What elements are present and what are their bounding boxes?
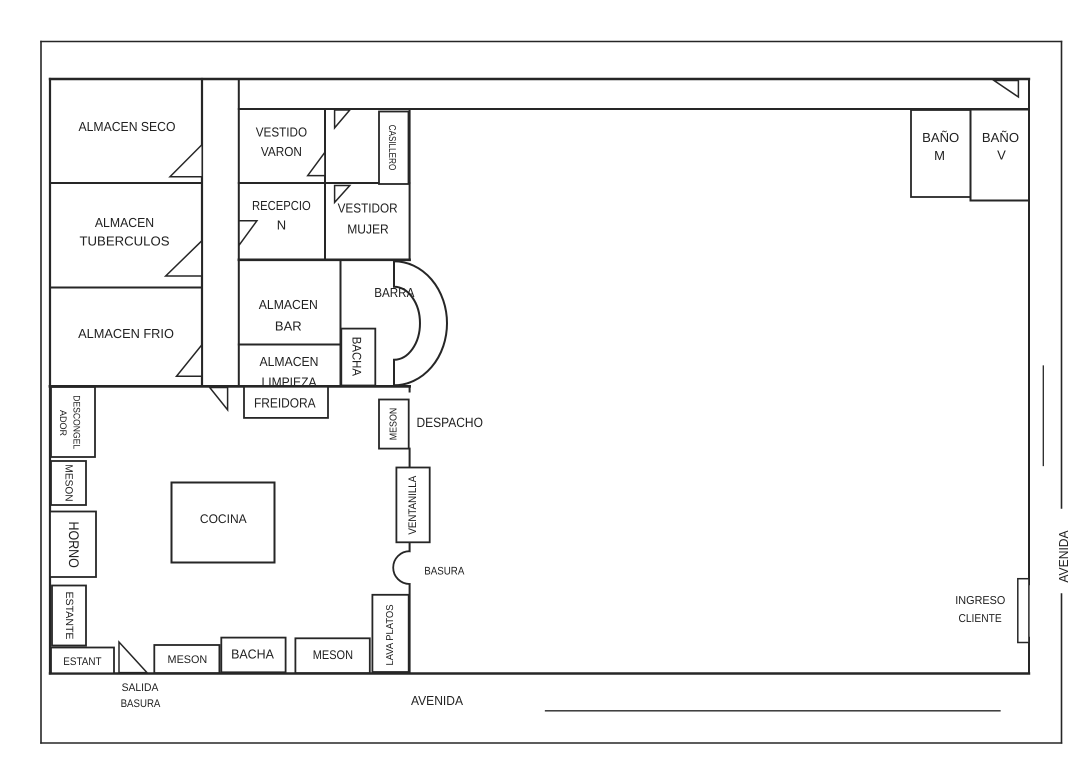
- svg-text:BASURA: BASURA: [424, 565, 465, 577]
- svg-text:BACHA: BACHA: [349, 337, 363, 377]
- svg-text:MESON: MESON: [168, 654, 208, 666]
- svg-text:MESON: MESON: [388, 408, 399, 441]
- svg-text:LAVA PLATOS: LAVA PLATOS: [385, 604, 396, 665]
- svg-text:ALMACEN SECO: ALMACEN SECO: [79, 119, 176, 134]
- svg-text:MESON: MESON: [313, 648, 353, 662]
- svg-text:M: M: [934, 148, 945, 163]
- svg-text:BAÑO: BAÑO: [982, 130, 1019, 145]
- svg-text:MESON: MESON: [63, 464, 75, 501]
- svg-text:DESCONGEL: DESCONGEL: [71, 395, 82, 449]
- svg-text:AVENIDA: AVENIDA: [411, 693, 463, 708]
- svg-text:COCINA: COCINA: [200, 512, 247, 526]
- svg-text:ESTANTE: ESTANTE: [63, 592, 75, 640]
- svg-text:MUJER: MUJER: [347, 221, 389, 236]
- svg-text:ADOR: ADOR: [57, 410, 68, 436]
- svg-text:VARON: VARON: [261, 144, 302, 159]
- svg-text:AVENIDA: AVENIDA: [1056, 530, 1071, 583]
- svg-text:ALMACEN: ALMACEN: [260, 354, 319, 369]
- svg-text:BAÑO: BAÑO: [922, 130, 959, 145]
- svg-text:BAR: BAR: [275, 319, 302, 334]
- svg-text:V: V: [997, 148, 1006, 163]
- svg-text:BACHA: BACHA: [231, 647, 274, 662]
- svg-text:CASILLERO: CASILLERO: [386, 125, 397, 171]
- svg-text:ALMACEN: ALMACEN: [95, 215, 154, 230]
- svg-text:TUBERCULOS: TUBERCULOS: [80, 234, 170, 249]
- svg-text:N: N: [277, 218, 286, 233]
- svg-text:BARRA: BARRA: [374, 285, 414, 300]
- svg-text:SALIDA: SALIDA: [122, 682, 159, 694]
- svg-text:FREIDORA: FREIDORA: [254, 395, 316, 410]
- svg-text:BASURA: BASURA: [121, 698, 161, 710]
- svg-text:ALMACEN FRIO: ALMACEN FRIO: [78, 326, 174, 341]
- svg-text:HORNO: HORNO: [66, 522, 82, 568]
- svg-text:VENTANILLA: VENTANILLA: [407, 475, 419, 534]
- svg-text:CLIENTE: CLIENTE: [958, 613, 1002, 625]
- svg-text:ALMACEN: ALMACEN: [259, 297, 318, 312]
- svg-text:DESPACHO: DESPACHO: [417, 415, 483, 430]
- svg-text:VESTIDOR: VESTIDOR: [338, 201, 398, 216]
- svg-text:INGRESO: INGRESO: [955, 595, 1005, 607]
- svg-text:VESTIDO: VESTIDO: [256, 125, 307, 140]
- svg-text:RECEPCIO: RECEPCIO: [252, 198, 311, 213]
- svg-text:ESTANT: ESTANT: [63, 656, 102, 668]
